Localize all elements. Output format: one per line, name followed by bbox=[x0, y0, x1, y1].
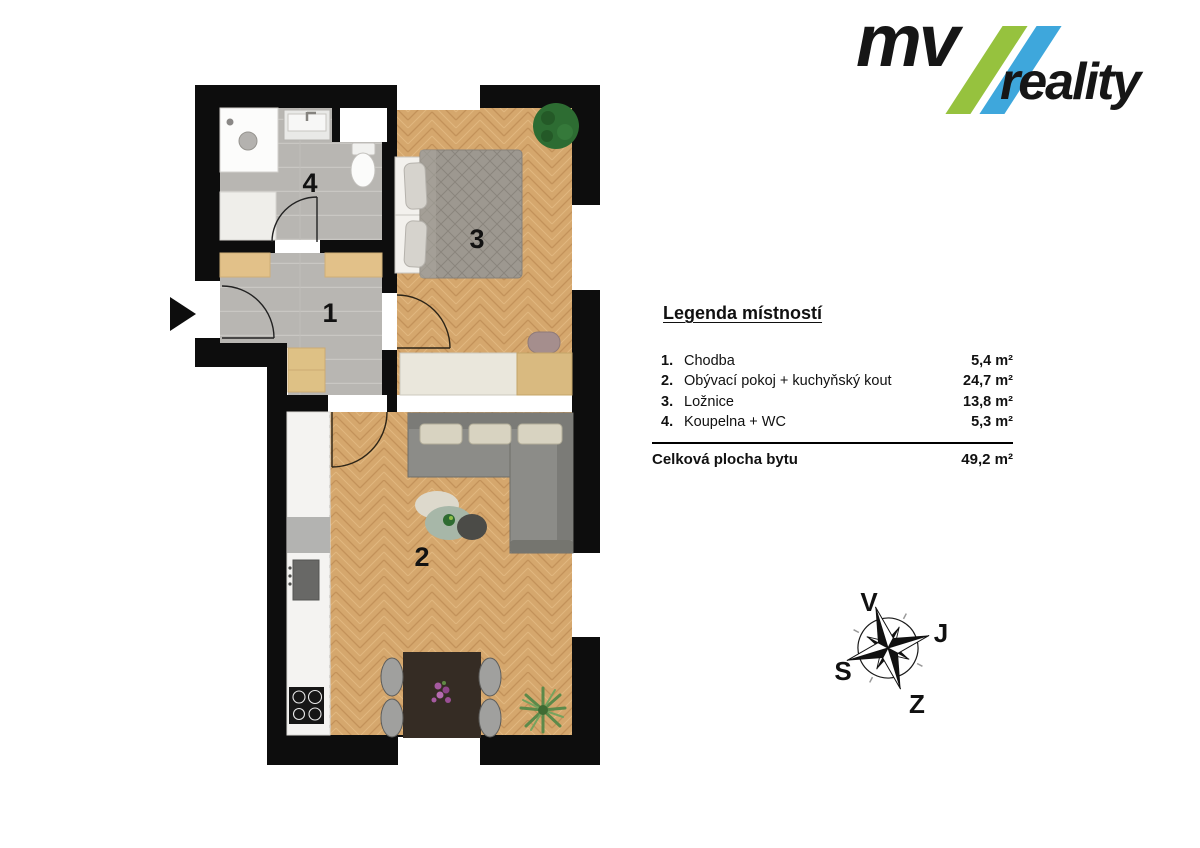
floor-plan: 1 2 3 4 bbox=[0, 0, 1200, 848]
window-bedroom-top bbox=[397, 83, 480, 110]
dining-chair bbox=[479, 699, 501, 737]
room-label-living: 2 bbox=[414, 542, 429, 572]
table-plant-highlight bbox=[449, 516, 453, 520]
sofa-pillows bbox=[420, 424, 562, 444]
wall-right bbox=[572, 85, 600, 765]
sofa-pillow bbox=[420, 424, 462, 444]
sofa-back-right bbox=[557, 429, 573, 540]
bedroom-door-opening bbox=[382, 293, 397, 350]
appliance-knob bbox=[288, 582, 291, 585]
dining-chair bbox=[479, 658, 501, 696]
window-bedroom-right bbox=[572, 205, 600, 290]
living-plant-icon bbox=[521, 688, 565, 732]
sofa-armrest bbox=[510, 540, 573, 553]
wall-left-lower bbox=[267, 367, 287, 735]
kitchen-sink-block bbox=[287, 517, 330, 553]
room-label-bathroom: 4 bbox=[302, 168, 317, 198]
appliance-knob bbox=[288, 566, 291, 569]
compass-letter-west: Z bbox=[909, 689, 925, 719]
dining-chair bbox=[381, 699, 403, 737]
room-label-bedroom: 3 bbox=[469, 224, 484, 254]
compass-letter-south: J bbox=[934, 618, 948, 648]
wall-step bbox=[195, 343, 287, 367]
hall-wardrobe-right bbox=[325, 253, 382, 277]
bathroom-cabinet bbox=[220, 192, 276, 240]
compass-letter-north: S bbox=[834, 656, 851, 686]
plant-leaf bbox=[541, 130, 553, 142]
sofa-pillow bbox=[469, 424, 511, 444]
compass-rose: V J Z S bbox=[834, 587, 948, 719]
appliance-knob bbox=[288, 574, 291, 577]
toilet-bowl-icon bbox=[351, 153, 375, 187]
bedroom-dresser bbox=[517, 353, 572, 395]
plant-leaf bbox=[541, 111, 555, 125]
dining-chair bbox=[381, 658, 403, 696]
shower-head-icon bbox=[239, 132, 257, 150]
room-label-hallway: 1 bbox=[322, 298, 337, 328]
bathroom-door-opening bbox=[275, 240, 320, 253]
window-living-bottom bbox=[398, 737, 480, 765]
entrance-door-opening bbox=[195, 281, 220, 338]
kitchen-appliance bbox=[293, 560, 319, 600]
page: mv reality Legenda místností 1. Chodba 5… bbox=[0, 0, 1200, 848]
window-living-right bbox=[572, 553, 600, 637]
hall-wardrobe-left bbox=[220, 253, 270, 277]
pouf bbox=[528, 332, 560, 353]
bedroom-sideboard bbox=[400, 353, 517, 395]
bed-pillow-top bbox=[404, 162, 427, 209]
sofa-pillow bbox=[518, 424, 562, 444]
shower-drain-icon bbox=[227, 119, 234, 126]
coffee-table-dark bbox=[457, 514, 487, 540]
plant-leaf bbox=[557, 124, 573, 140]
bedroom-plant-icon bbox=[533, 103, 579, 149]
living-door-opening bbox=[328, 395, 387, 412]
compass-letter-east: V bbox=[860, 587, 878, 617]
bathroom-window-niche bbox=[340, 108, 387, 142]
wall-niche-stub bbox=[332, 108, 340, 142]
entrance-arrow-icon bbox=[170, 297, 196, 331]
bed-pillow-bottom bbox=[404, 221, 427, 268]
table-plant-icon bbox=[443, 514, 455, 526]
